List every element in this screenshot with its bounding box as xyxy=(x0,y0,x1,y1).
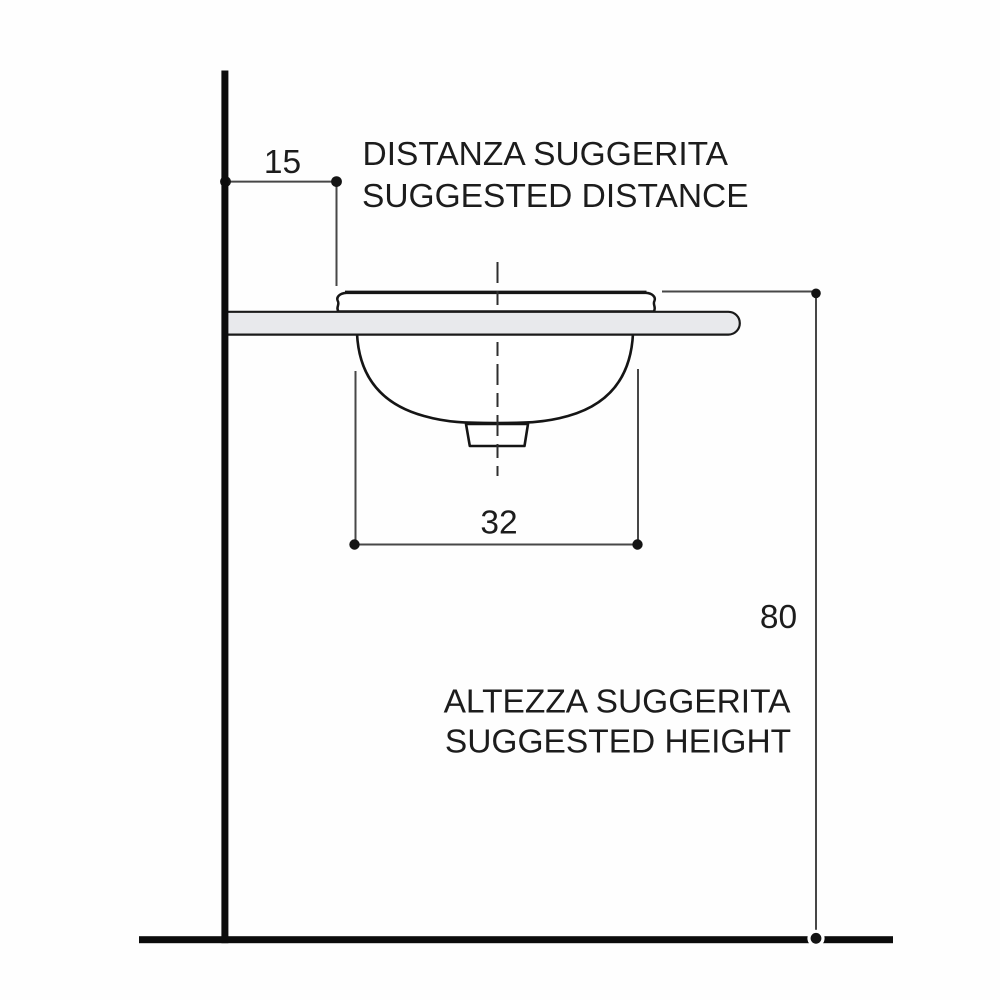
svg-text:80: 80 xyxy=(760,599,797,636)
svg-text:SUGGESTED HEIGHT: SUGGESTED HEIGHT xyxy=(445,724,791,761)
svg-text:SUGGESTED DISTANCE: SUGGESTED DISTANCE xyxy=(362,178,749,215)
svg-text:ALTEZZA SUGGERITA: ALTEZZA SUGGERITA xyxy=(444,684,791,721)
svg-text:32: 32 xyxy=(480,505,517,542)
svg-text:15: 15 xyxy=(264,144,301,181)
svg-text:DISTANZA SUGGERITA: DISTANZA SUGGERITA xyxy=(363,136,729,173)
